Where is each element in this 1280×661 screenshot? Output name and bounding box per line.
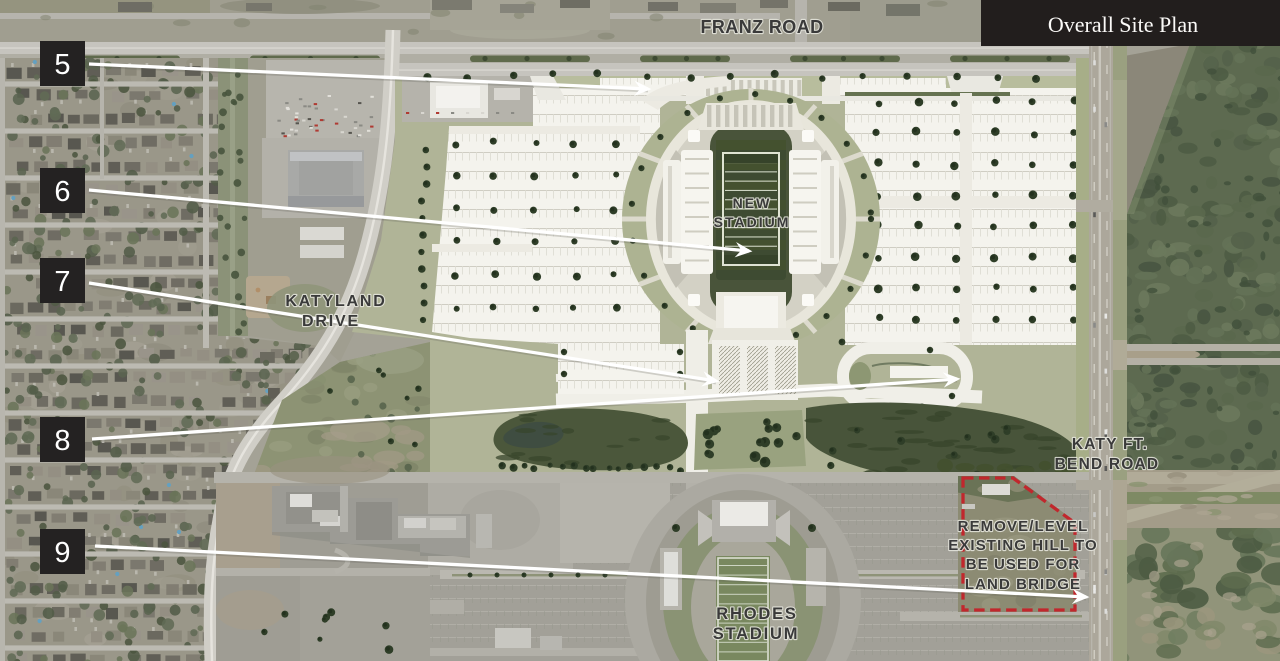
- svg-text:REMOVE/LEVEL: REMOVE/LEVEL: [958, 518, 1089, 535]
- svg-text:BEND ROAD: BEND ROAD: [1055, 456, 1160, 473]
- svg-text:8: 8: [54, 425, 70, 457]
- svg-text:DRIVE: DRIVE: [302, 313, 360, 330]
- svg-text:FRANZ ROAD: FRANZ ROAD: [701, 17, 824, 37]
- svg-text:NEW: NEW: [733, 195, 772, 211]
- svg-text:7: 7: [54, 266, 70, 298]
- svg-text:BE USED FOR: BE USED FOR: [966, 556, 1081, 573]
- svg-text:KATY FT.: KATY FT.: [1072, 436, 1148, 453]
- svg-text:5: 5: [54, 49, 70, 81]
- svg-text:STADIUM: STADIUM: [714, 214, 791, 230]
- svg-text:9: 9: [54, 537, 70, 569]
- svg-text:Overall Site Plan: Overall Site Plan: [1048, 12, 1198, 37]
- svg-text:RHODES: RHODES: [716, 605, 797, 623]
- svg-text:LAND BRIDGE: LAND BRIDGE: [965, 576, 1081, 593]
- svg-text:6: 6: [54, 176, 70, 208]
- svg-text:STADIUM: STADIUM: [713, 625, 800, 643]
- svg-text:KATYLAND: KATYLAND: [285, 293, 386, 310]
- svg-text:EXISTING HILL TO: EXISTING HILL TO: [948, 537, 1098, 554]
